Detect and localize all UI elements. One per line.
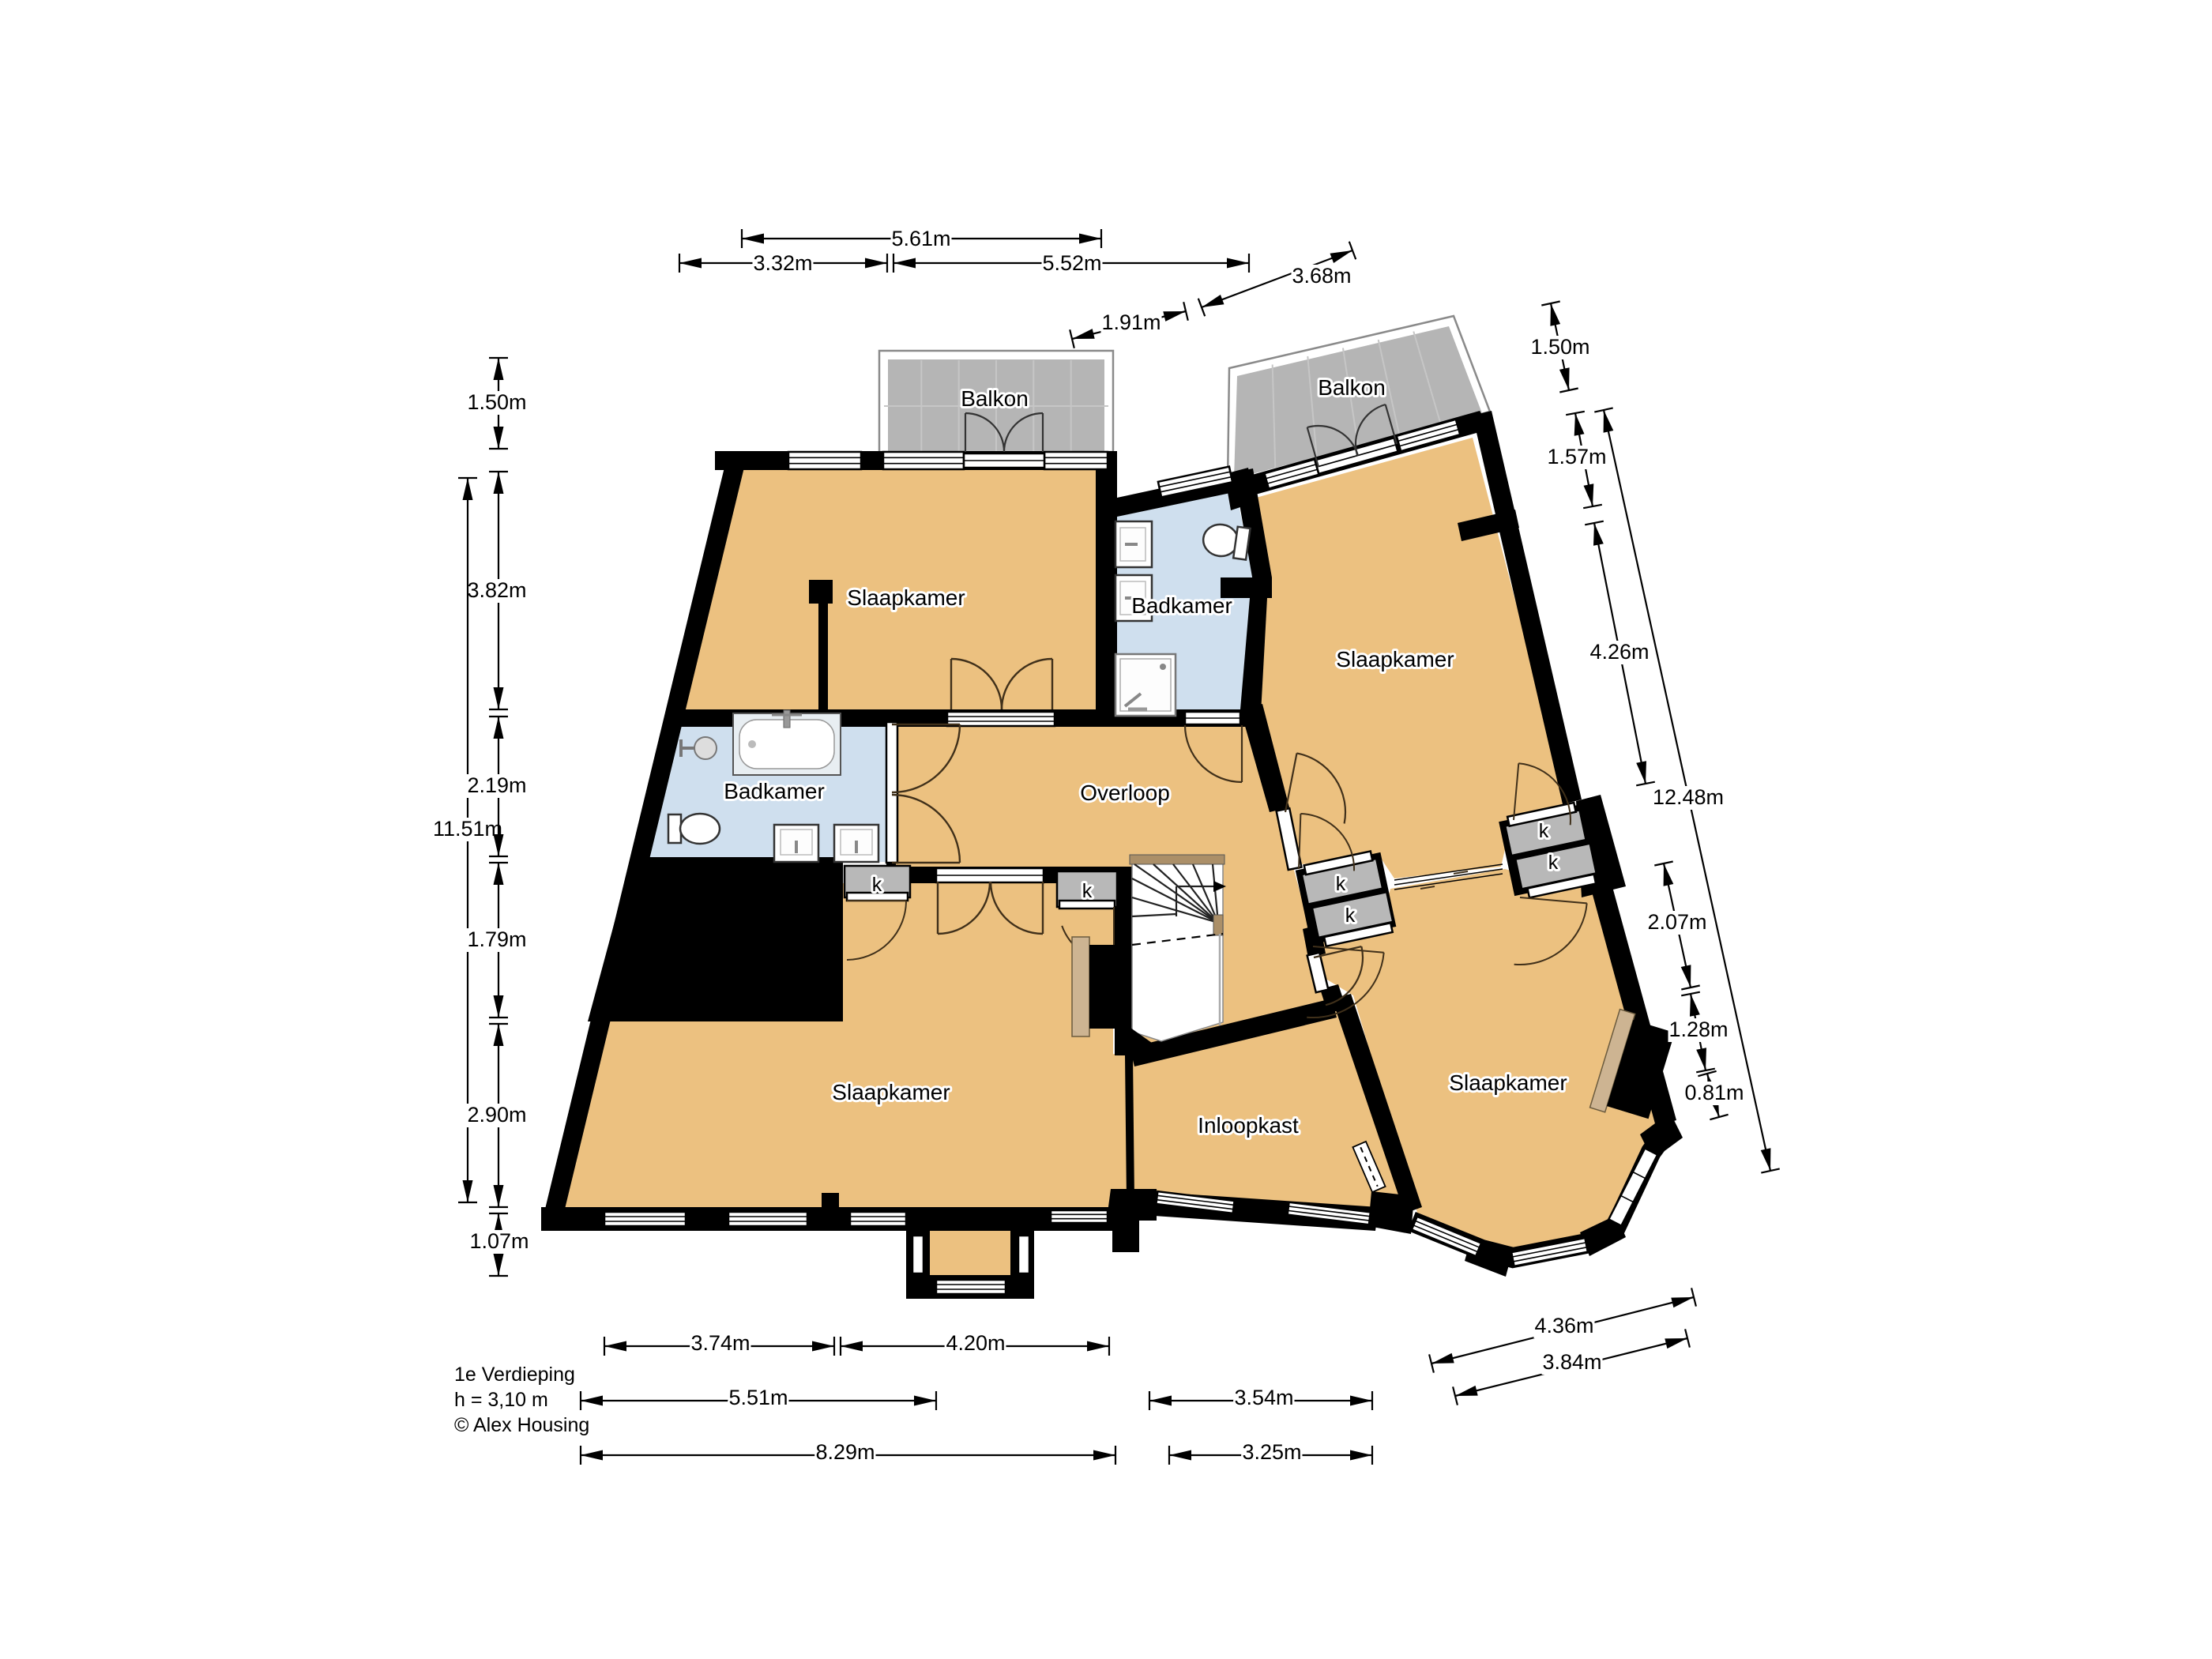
svg-text:k: k [872,874,882,896]
svg-text:12.48m: 12.48m [1653,785,1724,809]
svg-text:k: k [1082,880,1093,902]
svg-text:Slaapkamer: Slaapkamer [847,585,965,610]
svg-text:1.91m: 1.91m [1101,310,1161,334]
svg-text:1.57m: 1.57m [1547,445,1606,468]
svg-text:k: k [1336,873,1346,895]
svg-text:3.54m: 3.54m [1234,1386,1293,1409]
svg-text:1.28m: 1.28m [1668,1018,1728,1041]
svg-text:Balkon: Balkon [1318,375,1386,400]
svg-text:1.50m: 1.50m [1530,335,1589,359]
svg-text:4.20m: 4.20m [946,1331,1005,1355]
svg-text:Slaapkamer: Slaapkamer [1449,1070,1567,1095]
svg-text:Balkon: Balkon [961,386,1029,411]
svg-text:h = 3,10 m: h = 3,10 m [454,1389,548,1411]
svg-text:1.07m: 1.07m [469,1229,529,1253]
svg-text:0.81m: 0.81m [1684,1081,1744,1104]
svg-text:3.68m: 3.68m [1292,264,1351,288]
svg-text:k: k [1345,905,1356,927]
svg-text:5.61m: 5.61m [891,227,950,250]
svg-text:8.29m: 8.29m [815,1440,875,1464]
svg-text:© Alex Housing: © Alex Housing [454,1414,589,1436]
svg-text:2.90m: 2.90m [467,1103,526,1127]
svg-text:1.50m: 1.50m [467,390,526,414]
svg-text:k: k [1548,852,1559,874]
svg-text:5.51m: 5.51m [728,1386,788,1409]
svg-text:3.74m: 3.74m [690,1331,750,1355]
svg-text:Slaapkamer: Slaapkamer [1336,647,1454,671]
svg-text:5.52m: 5.52m [1042,251,1101,275]
svg-text:k: k [1539,820,1549,842]
svg-text:3.84m: 3.84m [1542,1350,1601,1374]
svg-text:1e Verdieping: 1e Verdieping [454,1364,575,1386]
svg-text:3.82m: 3.82m [467,578,526,602]
svg-text:Badkamer: Badkamer [1131,593,1232,618]
svg-text:3.32m: 3.32m [753,251,812,275]
svg-text:Inloopkast: Inloopkast [1198,1113,1299,1138]
svg-text:Badkamer: Badkamer [724,779,825,803]
svg-text:4.26m: 4.26m [1589,640,1649,664]
svg-text:11.51m: 11.51m [433,817,502,841]
svg-text:1.79m: 1.79m [467,927,526,951]
svg-text:Slaapkamer: Slaapkamer [832,1080,950,1104]
svg-text:2.19m: 2.19m [467,773,526,797]
svg-text:Overloop: Overloop [1080,781,1170,805]
svg-text:2.07m: 2.07m [1647,910,1706,934]
svg-text:4.36m: 4.36m [1534,1314,1593,1337]
svg-text:3.25m: 3.25m [1242,1440,1301,1464]
